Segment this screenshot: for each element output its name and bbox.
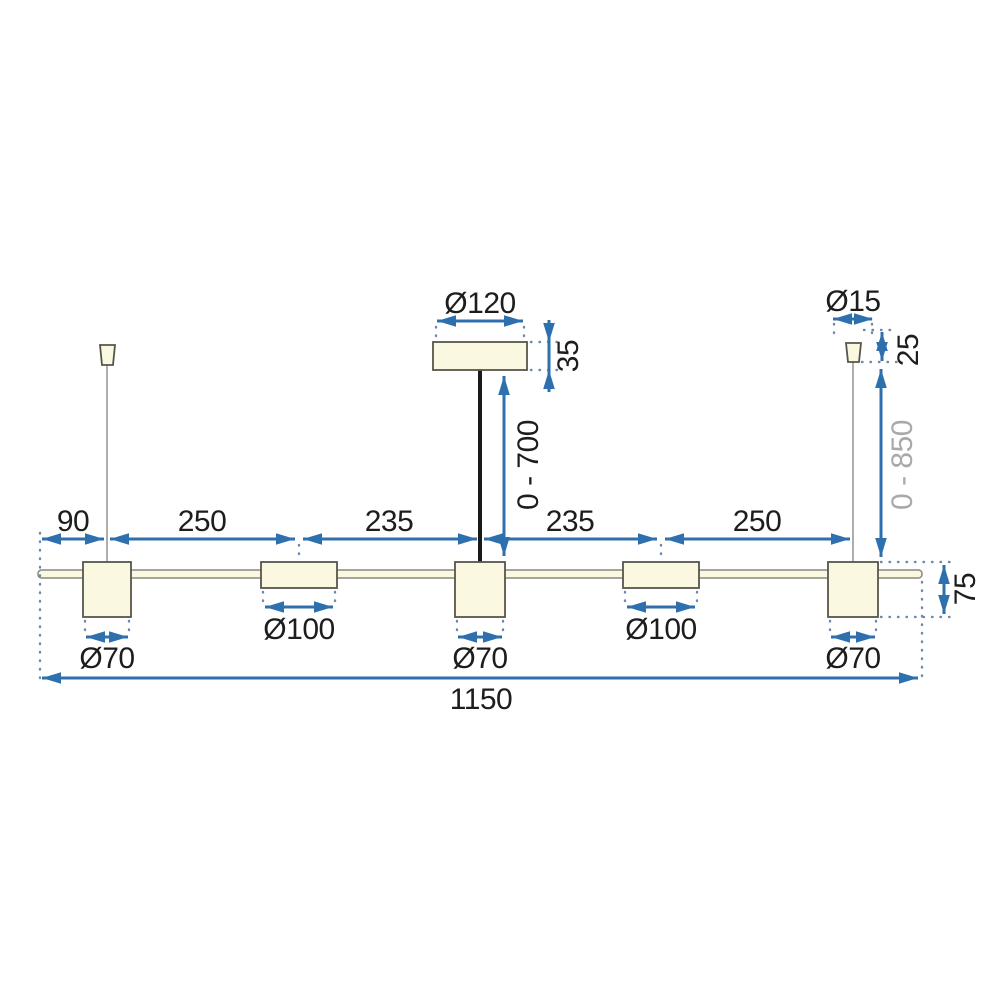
label-fixture-height: 75	[949, 573, 982, 605]
label-span-1: 250	[178, 505, 227, 538]
shade-4-wide	[623, 562, 699, 588]
label-cable-drop-range: 0 - 850	[886, 420, 919, 510]
label-rod-drop-range: 0 - 700	[512, 420, 545, 510]
label-shade-1-diameter: Ø70	[79, 642, 134, 675]
shade-2-wide	[261, 562, 337, 588]
label-offset-left: 90	[57, 505, 89, 538]
ceiling-canopy	[433, 342, 527, 370]
shade-1-cylinder	[83, 562, 131, 617]
cable-cap-left	[100, 345, 115, 365]
dimension-lines	[42, 319, 944, 678]
label-canopy-height: 35	[552, 340, 585, 372]
label-total-length: 1150	[450, 683, 513, 716]
label-cable-cap-height: 25	[892, 334, 925, 366]
label-span-4: 250	[733, 505, 782, 538]
label-shade-4-diameter: Ø100	[625, 613, 696, 646]
label-shade-3-diameter: Ø70	[452, 642, 507, 675]
shade-5-cylinder	[828, 562, 878, 617]
lamp-body	[38, 342, 922, 617]
label-shade-2-diameter: Ø100	[263, 613, 334, 646]
technical-drawing-page: Ø120 35 0 - 700 Ø15 25 0 - 850 90 250 23…	[0, 0, 1000, 1000]
cable-cap-right	[846, 343, 861, 362]
label-cable-cap-diameter: Ø15	[825, 285, 880, 318]
label-span-2: 235	[365, 505, 414, 538]
pendant-lamp-dimension-drawing: Ø120 35 0 - 700 Ø15 25 0 - 850 90 250 23…	[0, 0, 1000, 1000]
label-span-3: 235	[546, 505, 595, 538]
shade-3-cylinder	[455, 562, 505, 617]
label-shade-5-diameter: Ø70	[825, 642, 880, 675]
label-canopy-diameter: Ø120	[444, 287, 515, 320]
extension-lines	[40, 324, 952, 683]
